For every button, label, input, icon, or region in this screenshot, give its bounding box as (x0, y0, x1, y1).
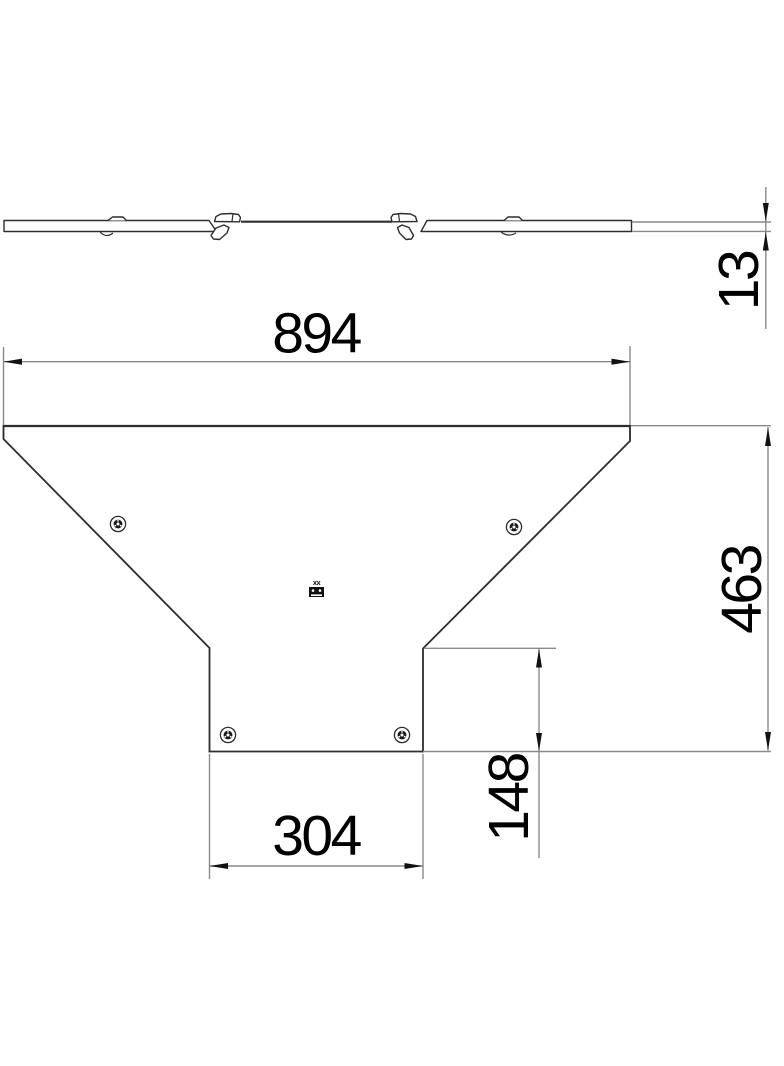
arrowhead-icon (536, 649, 542, 668)
technical-drawing-page: 13 894 xx (0, 0, 784, 1066)
dimension-label: 304 (272, 804, 361, 868)
dimension-label: 13 (707, 251, 771, 310)
arrowhead-icon (4, 359, 23, 365)
drawing-canvas: 13 894 xx (0, 0, 784, 1066)
side-view-left-notch (100, 232, 113, 236)
screw-icon (394, 727, 409, 742)
arrowhead-icon (763, 203, 769, 222)
dimension-label: 894 (272, 302, 361, 366)
dimension-label: 463 (710, 545, 774, 633)
side-view-right-tab (504, 217, 523, 221)
screw-icon (110, 516, 125, 531)
arrowhead-icon (763, 232, 769, 251)
plan-view: xx (4, 426, 772, 752)
arrowhead-icon (612, 359, 631, 365)
plan-left-edge (4, 426, 210, 752)
dim-total-depth: 463 (710, 427, 774, 751)
arrowhead-icon (765, 428, 771, 447)
dimension-label: 148 (477, 753, 541, 841)
fastener-clip-left (211, 214, 241, 240)
plan-right-edge (423, 426, 630, 752)
dim-branch-width: 304 (210, 754, 424, 879)
side-view (4, 214, 632, 240)
screw-icon (506, 519, 521, 534)
dim-cover-height: 13 (632, 187, 771, 329)
arrowhead-icon (210, 863, 229, 869)
dim-total-width: 894 (4, 302, 631, 442)
arrowhead-icon (405, 863, 424, 869)
manufacturer-logo: xx (309, 578, 324, 597)
arrowhead-icon (765, 732, 771, 751)
screw-icon (220, 727, 235, 742)
fastener-clip-right (391, 214, 417, 240)
arrowhead-icon (536, 733, 542, 751)
side-view-right-notch (501, 232, 516, 235)
dim-branch-offset: 148 (424, 648, 556, 858)
side-view-right-rail (421, 221, 632, 232)
side-view-left-rail (4, 221, 217, 232)
side-view-left-tab (108, 217, 127, 221)
logo-text: xx (313, 578, 322, 587)
